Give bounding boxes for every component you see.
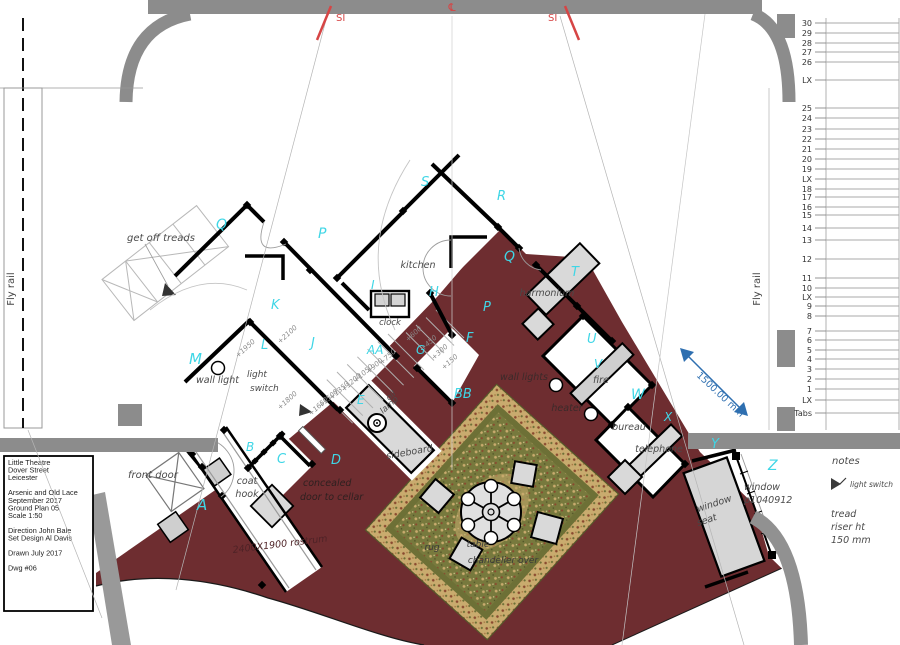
fly-bar-label: 6 — [807, 336, 812, 345]
fly-bar-label: 25 — [802, 104, 812, 113]
label-window: window — [744, 482, 780, 493]
note-150: 150 mm — [831, 535, 871, 546]
fly-bar-lx: LX — [802, 175, 899, 184]
fly-bar-12: 12 — [802, 255, 899, 264]
fly-bar-26: 26 — [802, 58, 899, 67]
reference-letter-p: P — [318, 226, 327, 242]
label-concealed: concealed — [303, 478, 352, 489]
reference-letter-r: R — [497, 189, 506, 204]
fly-bar-label: 22 — [802, 135, 812, 144]
label-telephone: telephone — [635, 444, 683, 455]
fly-bar-label: 7 — [807, 327, 812, 336]
reference-letter-s: S — [421, 175, 429, 190]
label-kitchen: kitchen — [401, 260, 436, 271]
fly-bar-label: 8 — [807, 312, 812, 321]
note-tread: tread — [831, 509, 857, 520]
label-rug: rug — [424, 543, 439, 553]
fly-bar-label: LX — [802, 175, 812, 184]
reference-letter-d: D — [331, 453, 341, 468]
legend-light-switch: light switch — [850, 480, 893, 489]
fly-bar-25: 25 — [802, 104, 899, 113]
dim-1500mm: 1500.00 mm — [694, 370, 746, 420]
reference-letter-v: V — [594, 357, 603, 371]
reference-letter-a: A — [196, 496, 207, 514]
fly-bar-label: 28 — [802, 39, 812, 48]
title-block-line: Scale 1:50 — [8, 511, 42, 520]
label-switch: switch — [250, 384, 279, 394]
title-block-line: Leicester — [8, 473, 38, 482]
fly-bar-label: 12 — [802, 255, 812, 264]
fly-bar-16: 16 — [802, 203, 899, 212]
fly-bar-label: Tabs — [793, 409, 812, 418]
fly-bar-13: 13 — [802, 236, 899, 245]
fly-bar-label: 29 — [802, 29, 812, 38]
fly-bar-label: 24 — [802, 114, 812, 123]
label-window-id: p1040912 — [743, 495, 792, 506]
label-fire: fire — [593, 375, 609, 386]
fly-bar-label: 17 — [802, 193, 812, 202]
fly-bar-29: 29 — [802, 29, 899, 38]
title-block-line: Drawn July 2017 — [8, 549, 62, 558]
fly-bar-21: 21 — [802, 145, 899, 154]
fly-bar-19: 19 — [802, 165, 899, 174]
fly-bar-label: 13 — [802, 236, 812, 245]
fly-bar-label: 1 — [807, 385, 812, 394]
fly-bar-label: 11 — [802, 274, 812, 283]
fly-bar-9: 9 — [807, 302, 899, 311]
reference-letter-q: Q — [504, 249, 515, 265]
fly-bar-23: 23 — [802, 125, 899, 134]
fly-bar-label: 5 — [807, 346, 812, 355]
right-proscenium — [688, 433, 900, 449]
reference-letter-bb: BB — [454, 387, 472, 402]
label-light: light — [247, 370, 267, 380]
fly-bar-label: 3 — [807, 365, 812, 374]
label-hook: hook — [235, 489, 259, 500]
fly-bar-label: 19 — [802, 165, 812, 174]
reference-letter-p: P — [483, 300, 491, 315]
chair — [511, 461, 536, 486]
level-1800: +1800 — [276, 389, 299, 411]
reference-letter-b: B — [246, 440, 254, 454]
fly-bar-6: 6 — [807, 336, 899, 345]
fly-bar-14: 14 — [802, 224, 899, 233]
fly-bar-7: 7 — [807, 327, 899, 336]
label-door-to-cellar: door to cellar — [300, 492, 364, 503]
fly-rail-left-label: Fly rail — [6, 272, 17, 305]
label-chandelier-over: chandelier over — [468, 556, 540, 566]
fly-bar-lx: LX — [802, 293, 899, 302]
wall-light-icon — [212, 362, 225, 375]
fly-bar-8: 8 — [807, 312, 899, 321]
title-block-line: Set Design Al Davis — [8, 534, 72, 543]
treads-leader — [145, 244, 168, 286]
fly-bar-lx: LX — [802, 396, 899, 405]
reference-letter-f: F — [466, 331, 474, 346]
label-wall-lights: wall lights — [500, 372, 548, 383]
label-harmonium: harmonium — [520, 288, 575, 299]
reference-letter-h: H — [429, 285, 439, 300]
fly-bar-10: 10 — [802, 284, 899, 293]
fly-bar-lx: LX — [802, 76, 899, 85]
label-bureau: bureau — [612, 422, 646, 433]
fly-bar-label: 23 — [802, 125, 812, 134]
mark-centerline: ℄ — [447, 1, 455, 14]
notes-title: notes — [832, 456, 860, 467]
reference-letter-e: E — [357, 393, 365, 407]
fly-bar-2: 2 — [807, 375, 899, 384]
label-heater: heater — [551, 403, 583, 414]
fly-bar-label: 30 — [802, 19, 812, 28]
reference-letter-w: W — [631, 387, 646, 403]
fly-bar-label: 14 — [802, 224, 812, 233]
fly-bar-label: LX — [802, 76, 812, 85]
fly-bar-label: 10 — [802, 284, 812, 293]
reference-letter-c: C — [277, 452, 287, 467]
clock — [371, 291, 409, 317]
fly-bar-28: 28 — [802, 39, 899, 48]
label-table: table — [467, 540, 490, 550]
fly-bar-label: 15 — [802, 211, 812, 220]
fly-bar-22: 22 — [802, 135, 899, 144]
label-clock: clock — [379, 318, 402, 328]
plan-canvas: 3029282726LX25242322212019LX181716151413… — [0, 0, 900, 645]
reference-letter-q: Q — [216, 217, 227, 233]
reference-letter-m: M — [189, 350, 202, 368]
fly-bar-24: 24 — [802, 114, 899, 123]
mark-si-left: SI — [336, 13, 345, 24]
title-block-line: Dwg #06 — [8, 564, 37, 573]
reference-letter-u: U — [587, 332, 597, 347]
reference-letter-x: X — [663, 410, 673, 424]
heater-icon — [585, 408, 598, 421]
fly-bar-27: 27 — [802, 48, 899, 57]
left-arch — [126, 14, 190, 102]
note-riser: riser ht — [831, 522, 866, 533]
fly-bar-17: 17 — [802, 193, 899, 202]
fly-bar-11: 11 — [802, 274, 899, 283]
fly-bar-label: LX — [802, 396, 812, 405]
label-wall-light: wall light — [196, 375, 240, 386]
reference-letter-z: Z — [767, 458, 778, 474]
fly-bar-4: 4 — [807, 355, 899, 364]
fly-bar-label: 27 — [802, 48, 812, 57]
fly-bar-label: LX — [802, 293, 812, 302]
fly-bar-label: 9 — [807, 302, 812, 311]
reference-letter-l: L — [261, 338, 268, 353]
label-front-door: front door — [128, 470, 179, 481]
reference-letter-i: I — [371, 278, 375, 292]
ground-plan-drawing: 3029282726LX25242322212019LX181716151413… — [0, 0, 900, 645]
get-off-treads — [102, 206, 229, 321]
chair — [531, 512, 563, 544]
fly-bar-18: 18 — [802, 185, 899, 194]
fly-bar-15: 15 — [802, 211, 899, 220]
reference-letter-y: Y — [711, 437, 720, 452]
fly-bar-label: 4 — [807, 355, 812, 364]
fly-bar-tabs: Tabs — [793, 409, 899, 418]
reference-letter-k: K — [271, 298, 281, 313]
fly-bar-label: 2 — [807, 375, 812, 384]
fly-bar-5: 5 — [807, 346, 899, 355]
level-1950: +1950 — [234, 337, 257, 359]
fly-rail-right-label: Fly rail — [752, 272, 763, 305]
fly-bar-label: 20 — [802, 155, 812, 164]
fly-bar-label: 26 — [802, 58, 812, 67]
light-switch-icon — [831, 478, 846, 490]
fly-bar-label: 21 — [802, 145, 812, 154]
fly-bar-3: 3 — [807, 365, 899, 374]
label-get-off-treads: get off treads — [127, 233, 195, 244]
fly-bar-1: 1 — [807, 385, 899, 394]
title-block: Little TheatreDover StreetLeicesterArsen… — [4, 456, 93, 611]
label-coat: coat — [237, 476, 259, 487]
mark-si-right: SI — [548, 13, 557, 24]
reference-letter-aa: AA — [366, 343, 383, 357]
left-proscenium — [0, 438, 218, 452]
fly-bar-30: 30 — [802, 19, 899, 28]
wall-light-icon — [550, 379, 563, 392]
fly-bar-20: 20 — [802, 155, 899, 164]
reference-letter-t: T — [571, 265, 580, 280]
dining-table — [461, 480, 521, 545]
